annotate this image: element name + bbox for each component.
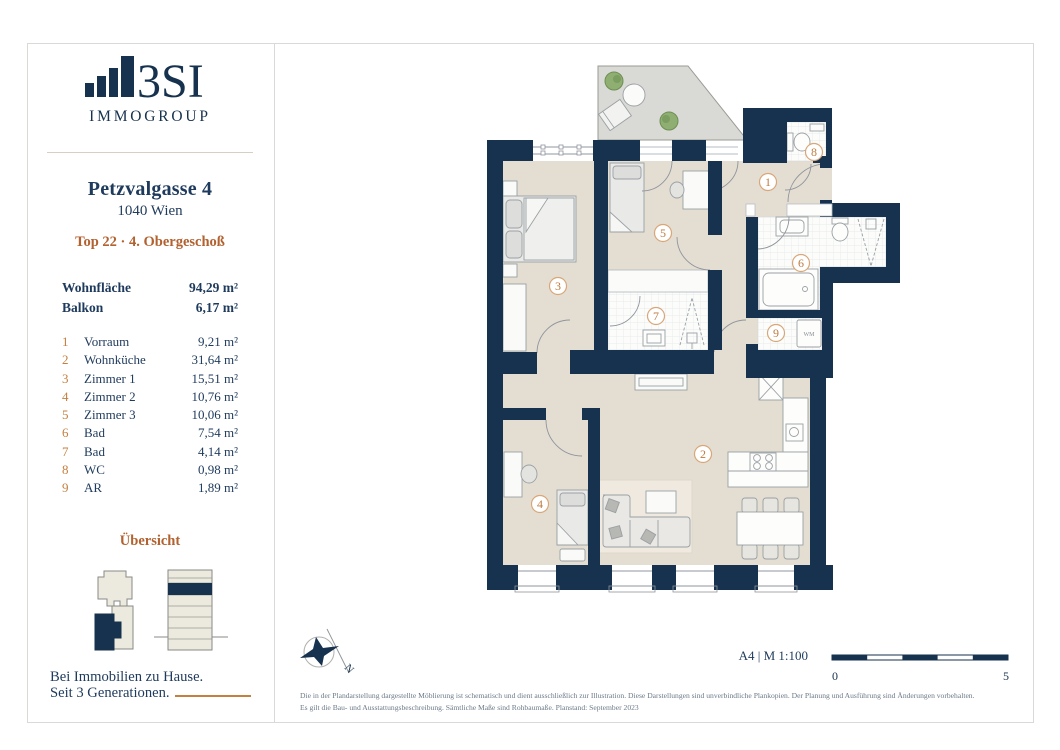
svg-text:3: 3: [555, 279, 561, 293]
room-area: 4,14 m²: [198, 443, 238, 461]
bathtub: [759, 269, 818, 310]
room-number: 5: [62, 406, 84, 424]
logo-divider: [47, 152, 253, 153]
summary-row: Balkon 6,17 m²: [62, 298, 238, 318]
room-area: 7,54 m²: [198, 424, 238, 442]
room-number: 9: [62, 479, 84, 497]
summary-label: Wohnfläche: [62, 278, 131, 298]
shelf: [810, 124, 824, 131]
building-footprint-icon: [95, 571, 133, 650]
address-line1: Petzvalgasse 4: [40, 178, 260, 201]
room-row: 5Zimmer 310,06 m²: [62, 406, 238, 424]
room-row: 6Bad7,54 m²: [62, 424, 238, 442]
area-summary: Wohnfläche 94,29 m² Balkon 6,17 m²: [62, 278, 238, 318]
scale-bar: 0 5: [825, 648, 1015, 686]
sink: [643, 330, 665, 346]
room-area: 31,64 m²: [191, 351, 238, 369]
room-name: AR: [84, 479, 198, 497]
overview-icons: [88, 560, 233, 655]
room-row: 9AR1,89 m²: [62, 479, 238, 497]
room-row: 7Bad4,14 m²: [62, 443, 238, 461]
toilet: [832, 223, 848, 241]
desk-chair: [670, 182, 684, 198]
scale-end-label: 5: [1003, 669, 1009, 683]
svg-text:6: 6: [798, 256, 804, 270]
summary-row: Wohnfläche 94,29 m²: [62, 278, 238, 298]
wardrobe: [503, 284, 526, 351]
scale-start-label: 0: [832, 669, 838, 683]
bar-chart-logo-icon: [85, 56, 134, 97]
room-name: Wohnküche: [84, 351, 191, 369]
room-name: Zimmer 2: [84, 388, 191, 406]
room-number: 3: [62, 370, 84, 388]
svg-text:7: 7: [653, 309, 659, 323]
disclaimer-line2: Es gilt die Bau- und Ausstattungsbeschre…: [300, 703, 1036, 712]
address-line2: 1040 Wien: [40, 203, 260, 220]
installation-wall: [608, 270, 708, 292]
dining-table: [737, 512, 803, 545]
room-area: 9,21 m²: [198, 333, 238, 351]
room-label-9: 9: [768, 325, 785, 342]
desk: [683, 171, 710, 209]
unit-title: Top 22 · 4. Obergeschoß: [40, 234, 260, 251]
room-label-1: 1: [760, 174, 777, 191]
room-row: 1Vorraum9,21 m²: [62, 333, 238, 351]
room-label-8: 8: [806, 144, 823, 161]
room-label-3: 3: [550, 278, 567, 295]
toilet-tank: [787, 133, 793, 151]
room-number: 8: [62, 461, 84, 479]
washing-machine-label: WM: [804, 332, 816, 338]
balcony-table: [623, 84, 645, 106]
compass-icon: N: [290, 623, 360, 683]
sidebar-divider: [274, 43, 275, 722]
room-label-6: 6: [793, 255, 810, 272]
room-label-5: 5: [655, 225, 672, 242]
disclaimer-line1: Die in der Plandarstellung dargestellte …: [300, 691, 1036, 700]
room9-fixtures: WM: [797, 320, 821, 347]
room-label-2: 2: [695, 446, 712, 463]
room-number: 2: [62, 351, 84, 369]
room-area: 1,89 m²: [198, 479, 238, 497]
room-label-4: 4: [532, 496, 549, 513]
compass-north-label: N: [342, 662, 356, 676]
window-top-room3: [533, 141, 593, 160]
company-logo: 3SI IMMOGROUP: [80, 50, 230, 130]
desk: [504, 452, 522, 497]
room-name: WC: [84, 461, 198, 479]
room-row: 8WC0,98 m²: [62, 461, 238, 479]
room-name: Zimmer 1: [84, 370, 191, 388]
room-number: 7: [62, 443, 84, 461]
svg-text:4: 4: [537, 497, 543, 511]
room-list: 1Vorraum9,21 m² 2Wohnküche31,64 m² 3Zimm…: [62, 333, 238, 498]
desk-chair: [521, 465, 537, 483]
coffee-table: [646, 491, 676, 513]
floorplan-document-page: 3SI IMMOGROUP Petzvalgasse 4 1040 Wien T…: [0, 0, 1060, 750]
tagline-line1: Bei Immobilien zu Hause.: [50, 670, 270, 686]
room-name: Zimmer 3: [84, 406, 191, 424]
room-name: Bad: [84, 424, 198, 442]
room-area: 15,51 m²: [191, 370, 238, 388]
room-row: 3Zimmer 115,51 m²: [62, 370, 238, 388]
svg-text:9: 9: [773, 326, 779, 340]
room-number: 6: [62, 424, 84, 442]
svg-text:1: 1: [765, 175, 771, 189]
sideboard: [635, 374, 687, 390]
room-area: 10,06 m²: [191, 406, 238, 424]
room-row: 2Wohnküche31,64 m²: [62, 351, 238, 369]
balcony: [598, 66, 747, 140]
room-label-7: 7: [648, 308, 665, 325]
room-name: Vorraum: [84, 333, 198, 351]
room-row: 4Zimmer 210,76 m²: [62, 388, 238, 406]
room-number: 1: [62, 333, 84, 351]
svg-text:8: 8: [811, 145, 817, 159]
format-scale-text: A4 | M 1:100: [680, 648, 808, 664]
room-area: 0,98 m²: [198, 461, 238, 479]
dining-set: [737, 498, 803, 559]
logo-subtext: IMMOGROUP: [89, 108, 211, 125]
svg-text:5: 5: [660, 226, 666, 240]
overview-title: Übersicht: [40, 533, 260, 550]
room-area: 10,76 m²: [191, 388, 238, 406]
summary-label: Balkon: [62, 298, 103, 318]
room-number: 4: [62, 388, 84, 406]
kitchen-sink: [786, 424, 803, 441]
tagline-accent-line: [175, 695, 251, 697]
summary-value: 6,17 m²: [196, 298, 238, 318]
room-name: Bad: [84, 443, 198, 461]
highlighted-floor: [168, 583, 212, 595]
summary-value: 94,29 m²: [189, 278, 238, 298]
logo-text: 3SI: [137, 55, 204, 108]
tagline-line2: Seit 3 Generationen.: [50, 686, 270, 702]
floor-plan: WM: [470, 50, 910, 610]
svg-text:2: 2: [700, 447, 706, 461]
building-section-icon: [154, 570, 228, 650]
